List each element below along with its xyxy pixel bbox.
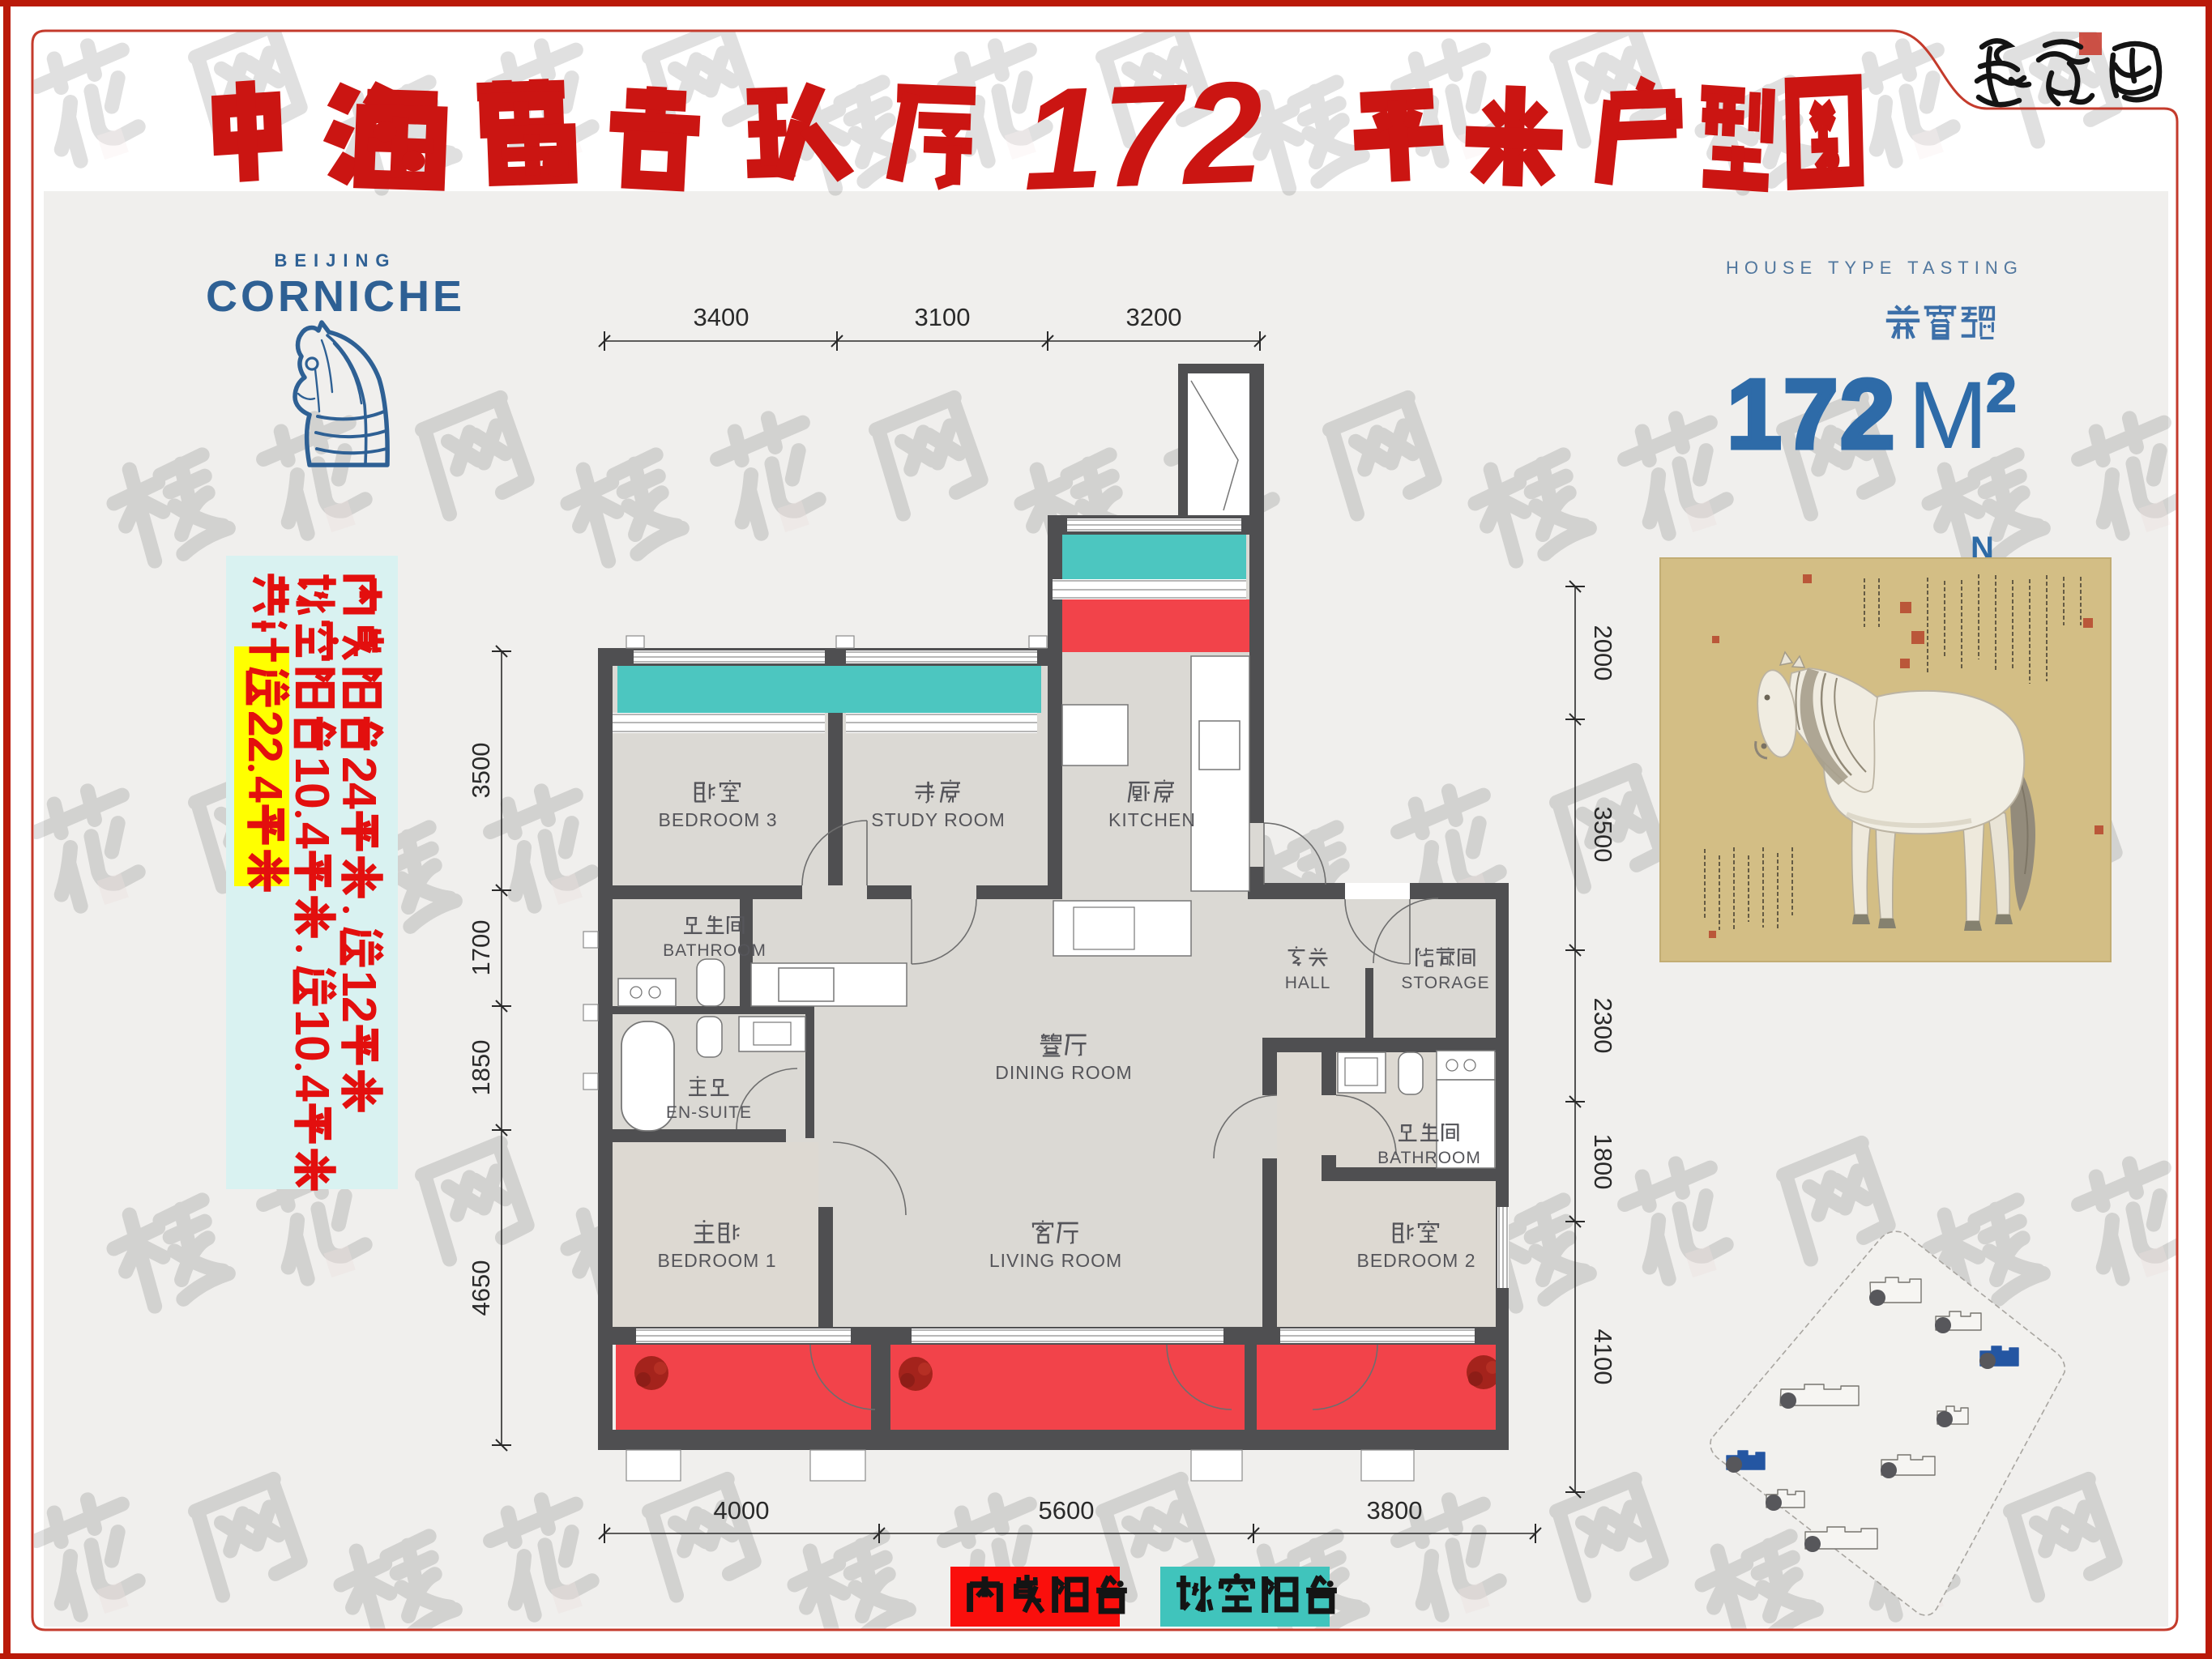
svg-text:3200: 3200	[1126, 303, 1182, 331]
svg-text:4: 4	[285, 1075, 339, 1102]
svg-text:KITCHEN: KITCHEN	[1108, 809, 1196, 830]
svg-text:2000: 2000	[1589, 625, 1617, 681]
svg-text:2300: 2300	[1589, 998, 1617, 1054]
svg-text:STORAGE: STORAGE	[1401, 974, 1489, 992]
svg-text:4000: 4000	[714, 1496, 770, 1525]
svg-text:M: M	[1908, 362, 1988, 469]
svg-text:EN-SUITE: EN-SUITE	[666, 1103, 752, 1122]
svg-text:0: 0	[285, 783, 339, 809]
svg-text:1850: 1850	[467, 1040, 495, 1096]
svg-text:4: 4	[332, 783, 386, 809]
svg-text:5600: 5600	[1039, 1496, 1095, 1525]
svg-text:1: 1	[285, 1009, 339, 1036]
svg-text:CORNICHE: CORNICHE	[206, 272, 465, 321]
svg-text:3500: 3500	[1589, 807, 1617, 863]
svg-text:STUDY ROOM: STUDY ROOM	[871, 809, 1005, 830]
svg-text:1800: 1800	[1589, 1134, 1617, 1190]
svg-text:LIVING ROOM: LIVING ROOM	[989, 1250, 1122, 1271]
svg-text:4: 4	[285, 822, 339, 849]
svg-text:BATHROOM: BATHROOM	[663, 941, 767, 960]
svg-text:3800: 3800	[1367, 1496, 1423, 1525]
svg-text:HOUSE TYPE TASTING: HOUSE TYPE TASTING	[1726, 258, 2023, 278]
svg-text:HALL: HALL	[1285, 974, 1331, 992]
svg-text:2: 2	[332, 996, 386, 1023]
svg-text:BEIJING: BEIJING	[274, 250, 396, 271]
svg-text:3500: 3500	[467, 743, 495, 799]
svg-text:DINING ROOM: DINING ROOM	[995, 1062, 1132, 1083]
svg-text:2: 2	[238, 710, 292, 737]
svg-text:4650: 4650	[467, 1260, 495, 1316]
svg-text:BEDROOM 2: BEDROOM 2	[1356, 1250, 1475, 1271]
svg-text:2: 2	[238, 736, 292, 763]
svg-text:3400: 3400	[694, 303, 749, 331]
svg-text:2: 2	[332, 757, 386, 783]
svg-text:1700: 1700	[467, 920, 495, 976]
svg-text:2: 2	[1986, 362, 2017, 424]
svg-text:3100: 3100	[915, 303, 971, 331]
svg-text:172: 172	[1020, 51, 1266, 220]
svg-text:4: 4	[238, 776, 292, 803]
svg-text:172: 172	[1727, 359, 1897, 469]
svg-text:1: 1	[285, 757, 339, 783]
svg-text:1: 1	[332, 970, 386, 997]
svg-text:BEDROOM 3: BEDROOM 3	[658, 809, 777, 830]
svg-text:0: 0	[285, 1035, 339, 1062]
svg-text:4100: 4100	[1589, 1329, 1617, 1385]
svg-text:BATHROOM: BATHROOM	[1377, 1149, 1481, 1167]
svg-text:BEDROOM 1: BEDROOM 1	[657, 1250, 776, 1271]
